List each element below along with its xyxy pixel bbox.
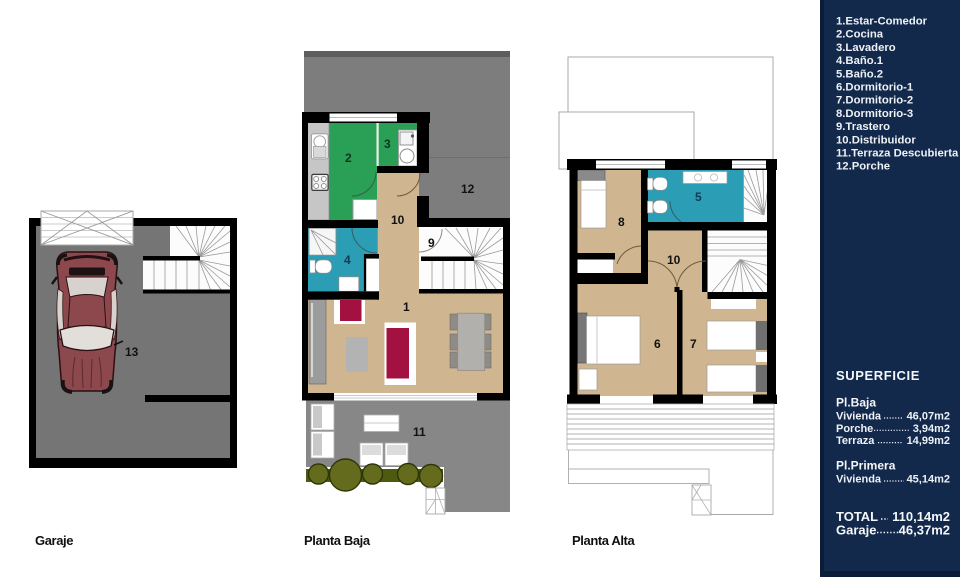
- svg-text:1.Estar-Comedor: 1.Estar-Comedor: [836, 16, 928, 28]
- svg-text:3.Lavadero: 3.Lavadero: [836, 42, 896, 54]
- svg-text:11: 11: [413, 425, 426, 439]
- svg-text:46,07m2: 46,07m2: [907, 411, 950, 423]
- svg-text:10: 10: [391, 213, 405, 227]
- svg-text:6.Dormitorio-1: 6.Dormitorio-1: [836, 82, 913, 94]
- svg-text:Planta Alta: Planta Alta: [572, 533, 635, 548]
- svg-text:46,37m2: 46,37m2: [899, 523, 950, 538]
- svg-text:2: 2: [345, 151, 352, 165]
- svg-text:4: 4: [344, 253, 351, 267]
- svg-text:10: 10: [667, 253, 681, 267]
- svg-text:Planta Baja: Planta Baja: [304, 533, 371, 548]
- svg-text:45,14m2: 45,14m2: [907, 474, 950, 486]
- svg-text:5.Baño.2: 5.Baño.2: [836, 68, 883, 80]
- svg-text:5: 5: [695, 190, 702, 204]
- svg-text:4.Baño.1: 4.Baño.1: [836, 55, 883, 67]
- svg-text:1: 1: [403, 300, 410, 314]
- svg-text:6: 6: [654, 337, 661, 351]
- svg-text:SUPERFICIE: SUPERFICIE: [836, 368, 920, 383]
- svg-text:7: 7: [690, 337, 697, 351]
- svg-text:3,94m2: 3,94m2: [913, 423, 950, 435]
- svg-text:13: 13: [125, 345, 139, 359]
- svg-text:Pl.Primera: Pl.Primera: [836, 459, 896, 473]
- svg-text:Pl.Baja: Pl.Baja: [836, 396, 876, 410]
- svg-text:Garaje: Garaje: [35, 533, 73, 548]
- svg-text:11.Terraza Descubierta: 11.Terraza Descubierta: [836, 148, 959, 160]
- svg-text:10.Distribuidor: 10.Distribuidor: [836, 134, 916, 146]
- svg-text:12: 12: [461, 182, 475, 196]
- svg-text:12.Porche: 12.Porche: [836, 161, 890, 173]
- svg-text:3: 3: [384, 137, 391, 151]
- svg-text:9: 9: [428, 236, 435, 250]
- svg-text:Garaje: Garaje: [836, 523, 876, 538]
- svg-text:8.Dormitorio-3: 8.Dormitorio-3: [836, 108, 913, 120]
- svg-text:8: 8: [618, 215, 625, 229]
- svg-text:Terraza: Terraza: [836, 435, 875, 447]
- svg-text:Porche: Porche: [836, 423, 873, 435]
- svg-text:2.Cocina: 2.Cocina: [836, 29, 884, 41]
- svg-text:Vivienda: Vivienda: [836, 411, 882, 423]
- svg-text:14,99m2: 14,99m2: [907, 435, 950, 447]
- svg-text:Vivienda: Vivienda: [836, 474, 882, 486]
- svg-text:7.Dormitorio-2: 7.Dormitorio-2: [836, 95, 913, 107]
- svg-text:9.Trastero: 9.Trastero: [836, 121, 890, 133]
